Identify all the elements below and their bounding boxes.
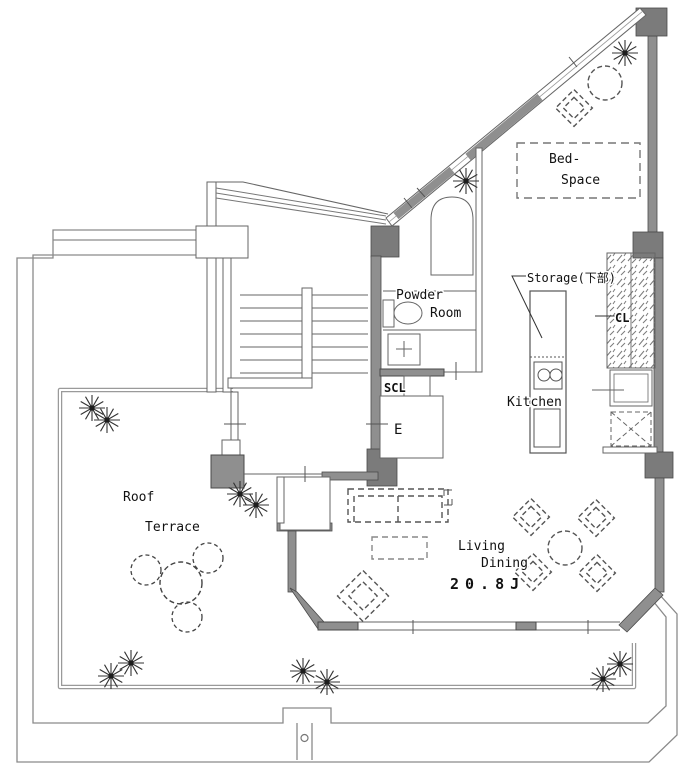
storage-label: Storage(下部)	[527, 270, 616, 285]
dining-chair-icon	[579, 555, 616, 592]
toilet-icon	[383, 300, 422, 327]
living-shell	[244, 466, 620, 634]
scl-label: SCL	[384, 381, 406, 395]
kitchen-area	[512, 276, 566, 453]
terrace-table	[160, 562, 202, 604]
terrace-label-2: Terrace	[145, 520, 200, 535]
stair-inner-wall	[223, 252, 231, 392]
closet-label: CL	[615, 311, 629, 325]
stair-landing	[196, 226, 248, 258]
living-label-1: Living	[458, 539, 505, 554]
dining-table	[548, 531, 582, 565]
coffee-table	[372, 537, 427, 559]
living-size-label: 20.8J	[450, 575, 525, 593]
floor-plan-page: Bed- Space Storage(下部) CL Powder Room Ki…	[0, 0, 678, 774]
wall-powder-right	[476, 148, 482, 372]
wall-east-upper	[648, 36, 657, 232]
dining-chair-icon	[513, 499, 550, 536]
refrigerator-icon	[592, 370, 652, 406]
diagonal-wall	[386, 8, 646, 226]
sofa-cushions	[354, 496, 442, 522]
bed-space-label-2: Space	[561, 173, 600, 188]
wall-block-east2	[645, 452, 673, 478]
washer-space-icon	[611, 412, 651, 446]
stair-stringer-lines	[216, 188, 386, 224]
stair-rail-horizontal	[228, 378, 312, 388]
dining-chair-icon	[578, 500, 615, 537]
shelf-band	[603, 447, 657, 453]
terrace-label-1: Roof	[123, 490, 154, 505]
scl-counter	[404, 376, 430, 396]
wall-block-left	[211, 455, 244, 488]
floor-plan-canvas: Bed- Space Storage(下部) CL Powder Room Ki…	[0, 0, 678, 774]
elevator-label: E	[394, 422, 402, 438]
wall-junction-block	[371, 226, 399, 257]
bed-space-label-1: Bed-	[549, 152, 580, 167]
sink-icon	[534, 409, 560, 447]
alcove-box	[280, 477, 330, 530]
pillar-left	[222, 440, 240, 456]
bathtub-icon	[431, 197, 473, 275]
wall-below-stairs	[231, 392, 238, 442]
nook-table	[588, 66, 622, 100]
washbasin-icon	[388, 334, 420, 365]
plant-icon	[118, 650, 144, 676]
plant-icon	[290, 658, 316, 684]
lounge-chair	[338, 571, 389, 622]
powder-label-1: Powder	[396, 288, 443, 303]
plant-icon	[243, 492, 269, 518]
stair-left-wall	[207, 182, 216, 392]
nook-chair-icon	[556, 90, 593, 127]
elevator-shaft	[380, 396, 443, 458]
plant-icon	[314, 669, 340, 695]
terrace-chair-icon	[193, 543, 223, 573]
staircase	[196, 182, 388, 488]
scl-wall-band	[380, 369, 444, 376]
site-boundary	[17, 230, 677, 762]
plant-icon	[607, 651, 633, 677]
wall-east-lower	[655, 478, 664, 592]
stair-stringer-top	[207, 182, 388, 214]
stair-rail-vertical	[302, 288, 312, 384]
terrace-chair-icon	[172, 602, 202, 632]
wall-living-west	[288, 531, 296, 592]
window-south	[318, 620, 620, 634]
window-west	[277, 477, 284, 523]
gate-marker	[301, 735, 308, 742]
outer-boundary-line	[17, 230, 677, 762]
terrace-chair-icon	[131, 555, 161, 585]
wall-chamfer-se	[619, 588, 663, 632]
living-label-2: Dining	[481, 556, 528, 571]
stove-icon	[534, 362, 562, 389]
powder-label-2: Room	[430, 306, 461, 321]
plant-icon	[612, 40, 638, 66]
kitchen-label: Kitchen	[507, 395, 562, 410]
